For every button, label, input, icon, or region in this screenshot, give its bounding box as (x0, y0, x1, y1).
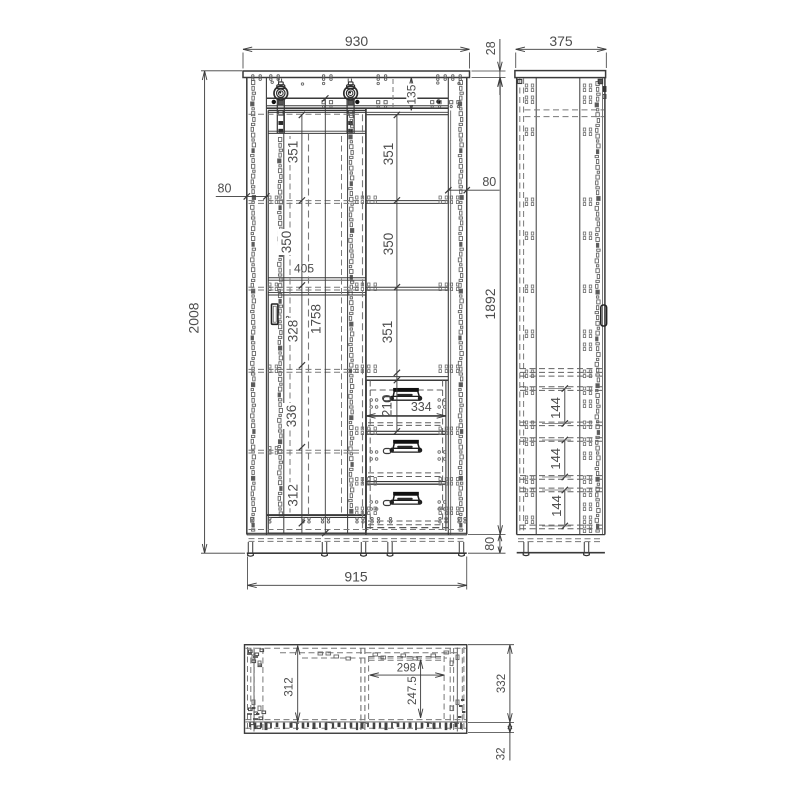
svg-text:135: 135 (405, 84, 419, 104)
svg-text:332: 332 (496, 674, 508, 693)
svg-text:350: 350 (279, 231, 294, 254)
svg-text:915: 915 (344, 568, 368, 584)
svg-text:351: 351 (381, 143, 396, 166)
svg-text:405: 405 (294, 262, 314, 276)
svg-text:80: 80 (483, 537, 497, 551)
svg-text:1758: 1758 (308, 304, 323, 334)
svg-text:375: 375 (549, 33, 573, 49)
svg-text:312: 312 (284, 677, 296, 696)
svg-text:336: 336 (284, 405, 299, 428)
svg-text:930: 930 (345, 33, 369, 49)
svg-text:144: 144 (548, 397, 563, 419)
svg-text:80: 80 (482, 175, 496, 189)
svg-text:312: 312 (286, 484, 301, 507)
svg-text:32: 32 (496, 748, 508, 761)
svg-text:298: 298 (397, 663, 416, 675)
svg-text:144: 144 (548, 448, 563, 470)
svg-text:144: 144 (549, 495, 564, 517)
svg-text:28: 28 (484, 41, 498, 55)
svg-text:210: 210 (380, 395, 395, 418)
svg-text:350: 350 (381, 233, 396, 256)
svg-text:328: 328 (285, 320, 300, 343)
svg-text:2008: 2008 (186, 302, 202, 333)
svg-text:351: 351 (285, 141, 300, 164)
svg-text:1892: 1892 (482, 288, 498, 319)
svg-text:247.5: 247.5 (407, 676, 419, 705)
svg-text:334: 334 (411, 400, 432, 414)
svg-text:351: 351 (380, 321, 395, 344)
svg-text:80: 80 (218, 181, 232, 195)
